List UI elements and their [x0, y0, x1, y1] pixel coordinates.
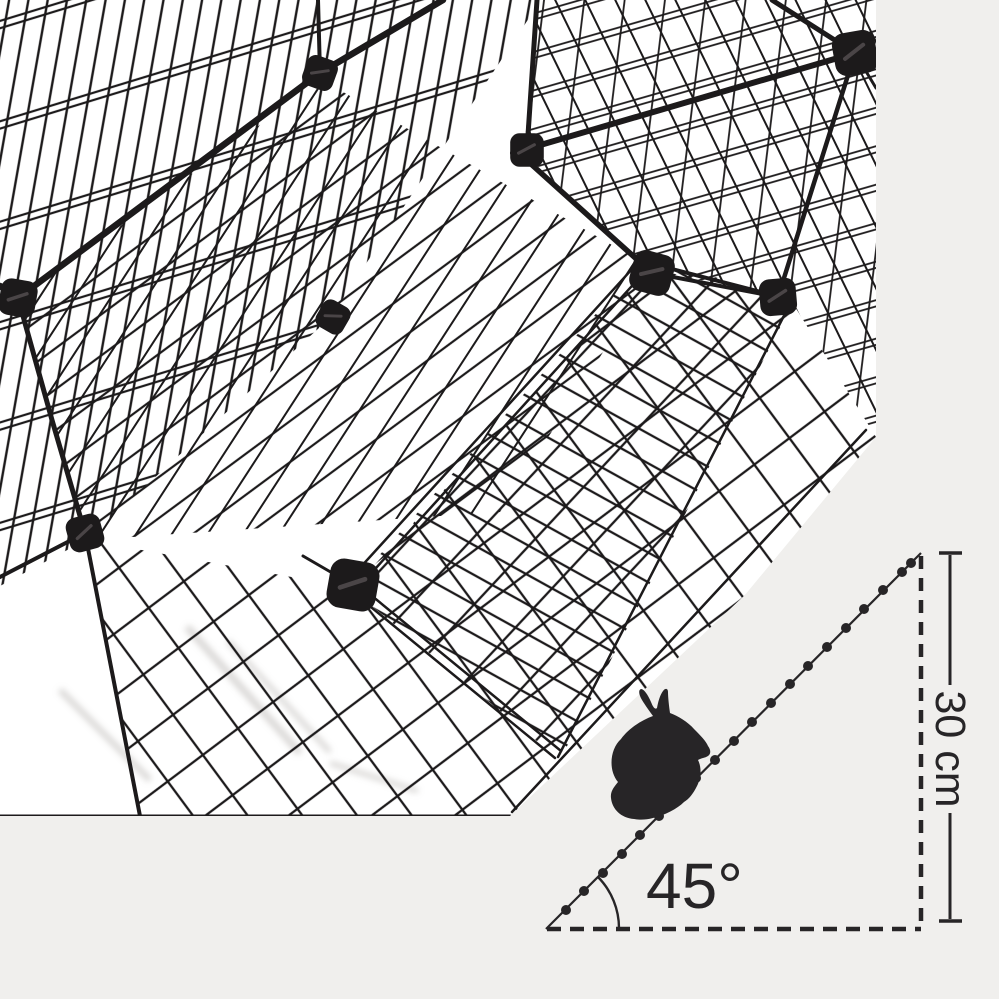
height-label: 30 cm [926, 690, 974, 807]
angle-label: 45° [646, 850, 743, 922]
product-illustration: 45° 30 cm [0, 0, 999, 999]
scene-svg: 45° 30 cm [0, 0, 999, 999]
